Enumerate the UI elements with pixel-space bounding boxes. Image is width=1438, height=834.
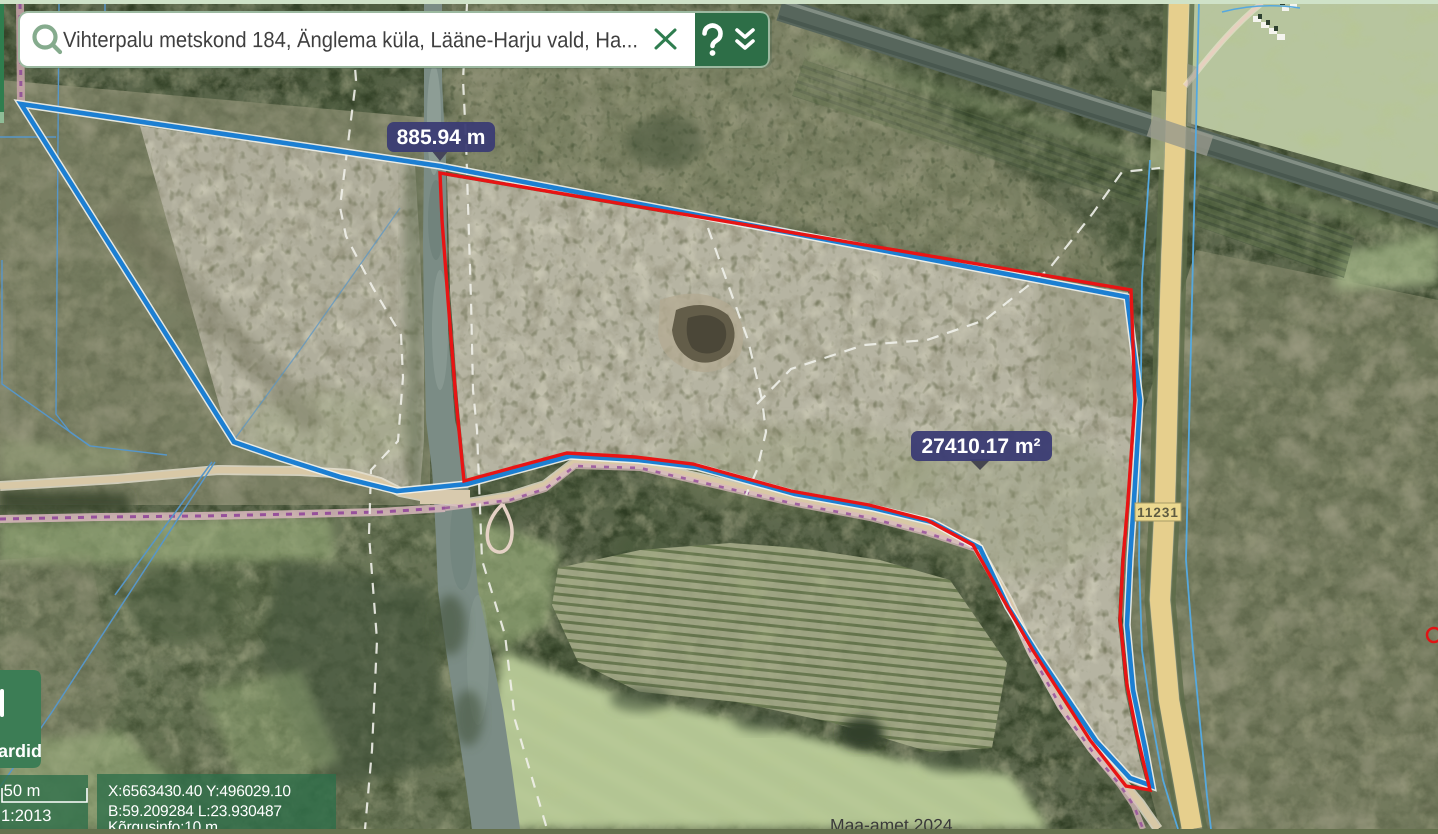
svg-text:Kõrgusinfo:10 m: Kõrgusinfo:10 m: [108, 819, 218, 829]
svg-text:ardid: ardid: [0, 741, 42, 761]
svg-text:885.94 m: 885.94 m: [397, 126, 486, 149]
svg-text:11231: 11231: [1137, 505, 1179, 520]
svg-text:X:6563430.40 Y:496029.10: X:6563430.40 Y:496029.10: [108, 783, 291, 800]
svg-text:50 m: 50 m: [4, 782, 41, 800]
svg-text:Vihterpalu metskond 184, Ängle: Vihterpalu metskond 184, Änglema küla, L…: [63, 27, 638, 52]
svg-text:B:59.209284 L:23.930487: B:59.209284 L:23.930487: [108, 803, 282, 820]
svg-text:27410.17 m²: 27410.17 m²: [921, 435, 1040, 458]
svg-text:Maa-amet 2024: Maa-amet 2024: [830, 815, 953, 829]
svg-text:1:2013: 1:2013: [1, 807, 51, 825]
